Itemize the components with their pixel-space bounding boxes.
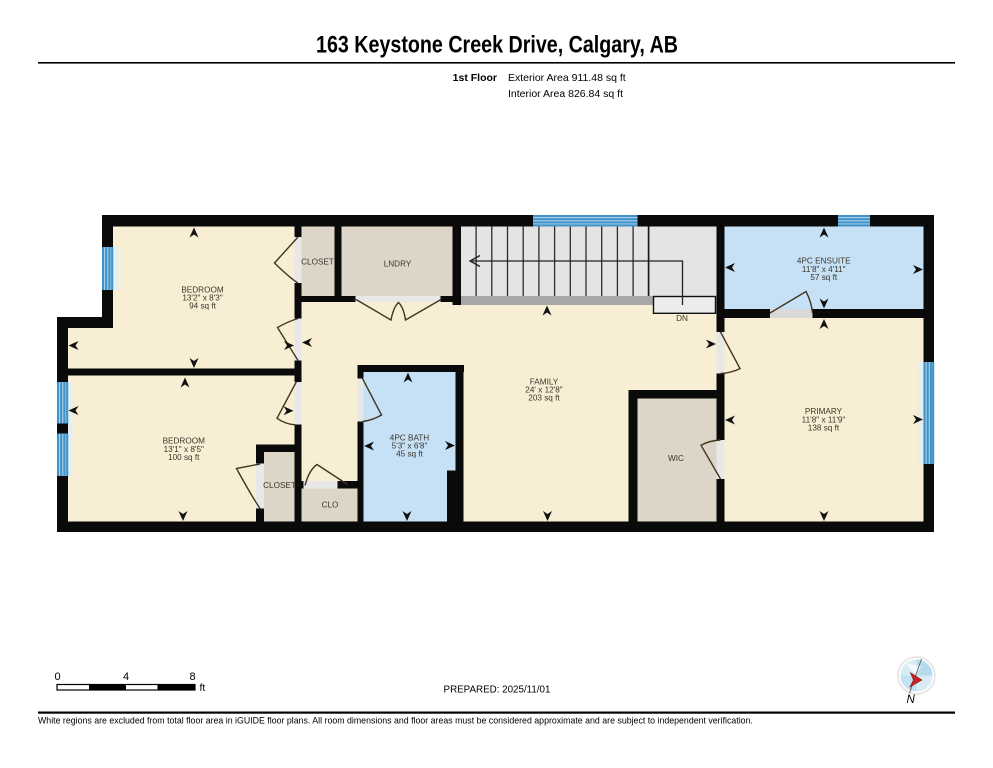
- svg-text:94 sq ft: 94 sq ft: [189, 302, 217, 311]
- svg-text:CLOSET: CLOSET: [263, 481, 296, 490]
- svg-text:138 sq ft: 138 sq ft: [808, 424, 840, 433]
- svg-text:WIC: WIC: [668, 454, 684, 463]
- svg-text:White regions are excluded fro: White regions are excluded from total fl…: [38, 716, 753, 726]
- svg-text:163 Keystone Creek Drive, Calg: 163 Keystone Creek Drive, Calgary, AB: [316, 32, 678, 59]
- svg-text:1st Floor: 1st Floor: [453, 72, 497, 84]
- svg-text:4: 4: [123, 671, 129, 683]
- svg-text:ft: ft: [200, 682, 206, 694]
- svg-text:N: N: [907, 694, 916, 706]
- svg-text:LNDRY: LNDRY: [384, 260, 412, 269]
- svg-text:CLOSET: CLOSET: [301, 258, 334, 267]
- svg-text:DN: DN: [676, 314, 688, 323]
- svg-text:57 sq ft: 57 sq ft: [810, 273, 838, 282]
- svg-text:PREPARED: 2025/11/01: PREPARED: 2025/11/01: [444, 685, 551, 696]
- svg-text:Exterior Area 911.48 sq ft: Exterior Area 911.48 sq ft: [508, 72, 626, 84]
- svg-text:45 sq ft: 45 sq ft: [396, 450, 424, 459]
- svg-text:Interior Area 826.84 sq ft: Interior Area 826.84 sq ft: [508, 88, 623, 100]
- svg-text:8: 8: [189, 671, 195, 683]
- svg-text:CLO: CLO: [322, 501, 339, 510]
- svg-text:203 sq ft: 203 sq ft: [528, 394, 560, 403]
- svg-text:0: 0: [54, 671, 60, 683]
- svg-text:100 sq ft: 100 sq ft: [168, 453, 200, 462]
